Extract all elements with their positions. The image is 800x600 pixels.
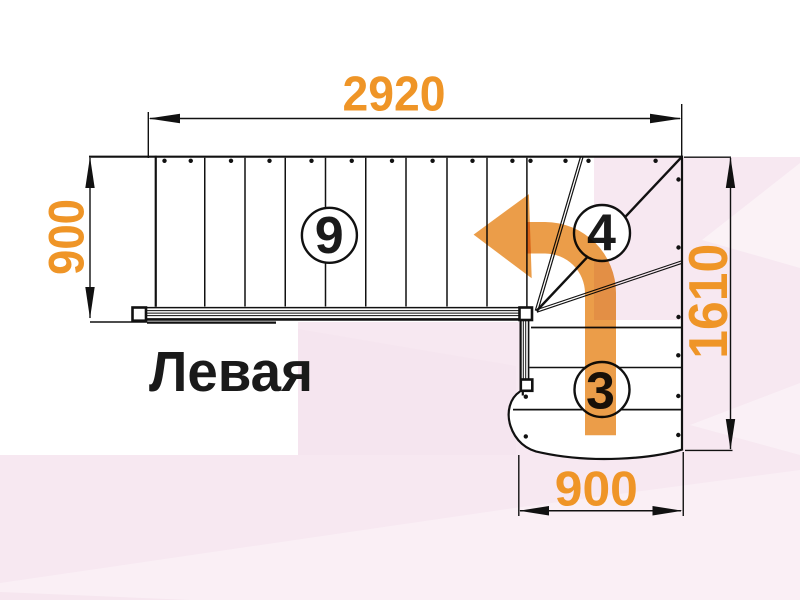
svg-text:900: 900 (555, 462, 638, 516)
svg-text:1610: 1610 (677, 244, 739, 359)
svg-text:900: 900 (39, 199, 95, 275)
svg-text:Левая: Левая (149, 340, 313, 404)
svg-text:9: 9 (315, 207, 344, 265)
svg-text:2920: 2920 (343, 68, 446, 122)
